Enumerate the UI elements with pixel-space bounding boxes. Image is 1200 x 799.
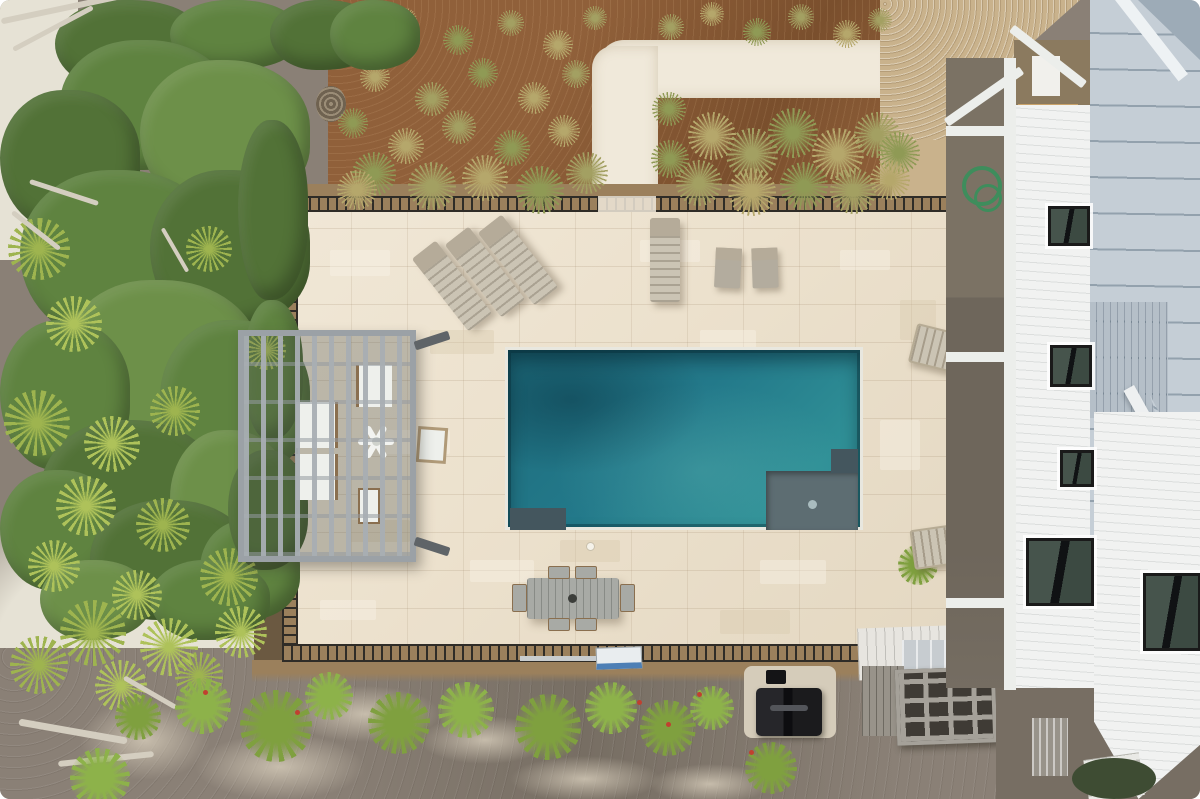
swimming-pool <box>505 347 863 530</box>
dining-chair <box>575 618 597 631</box>
house-window <box>1048 206 1090 246</box>
red-bloom <box>637 700 642 705</box>
pool-safety-sign <box>596 646 643 670</box>
pool-gate <box>598 196 656 212</box>
vegetation-canopy <box>330 0 420 70</box>
red-bloom <box>203 690 208 695</box>
shelf-drain <box>808 500 817 509</box>
dining-chair <box>548 566 570 579</box>
green-shrub <box>438 682 494 738</box>
dining-table <box>527 578 619 619</box>
gas-grill <box>756 688 822 736</box>
screened-porch <box>946 58 1012 688</box>
foundation-skirt <box>1032 718 1068 776</box>
porch-beam <box>1004 58 1016 690</box>
deck-chair <box>714 247 742 288</box>
travertine-highlight <box>320 600 376 620</box>
travertine-highlight <box>880 420 920 470</box>
house-window <box>1143 573 1200 651</box>
shadow-bush <box>1072 758 1156 799</box>
sand-patch <box>510 756 660 799</box>
travertine-highlight <box>840 250 890 270</box>
travertine-highlight <box>720 610 790 634</box>
sun-shelf-step <box>831 449 858 473</box>
travertine-highlight <box>760 560 826 584</box>
travertine-highlight <box>330 250 390 276</box>
garden-hose <box>962 166 1002 206</box>
pergola <box>238 330 416 562</box>
porch-beam <box>946 352 1016 362</box>
dining-chair <box>548 618 570 631</box>
house-window <box>1060 450 1094 487</box>
gate-rail <box>520 656 600 661</box>
house-window <box>1050 345 1092 387</box>
dining-chair <box>512 584 527 612</box>
travertine-highlight <box>470 560 534 582</box>
umbrella-sleeve <box>586 542 595 551</box>
red-bloom <box>749 750 754 755</box>
aerial-backyard-photo: Aerial drone view of a coastal beach-hou… <box>0 0 1200 799</box>
pergola-slat-roof <box>238 330 416 562</box>
vegetation-canopy <box>238 120 308 300</box>
dining-chair <box>620 584 635 612</box>
pool-corner-bench <box>510 508 566 530</box>
grill-side-box <box>766 670 786 684</box>
ornamental-grass-tuft <box>443 25 473 55</box>
red-bloom <box>697 692 702 697</box>
red-bloom <box>666 722 671 727</box>
dining-chair <box>575 566 597 579</box>
house-wall <box>1006 105 1096 705</box>
saw-palmetto <box>8 218 70 280</box>
porch-beam <box>946 598 1016 608</box>
poolside-lounge-chair <box>416 426 448 464</box>
porch-beam <box>946 126 1016 136</box>
red-bloom <box>295 710 300 715</box>
chaise-lounge <box>650 218 680 302</box>
house-window <box>1026 538 1094 606</box>
deck-chair <box>751 248 778 289</box>
